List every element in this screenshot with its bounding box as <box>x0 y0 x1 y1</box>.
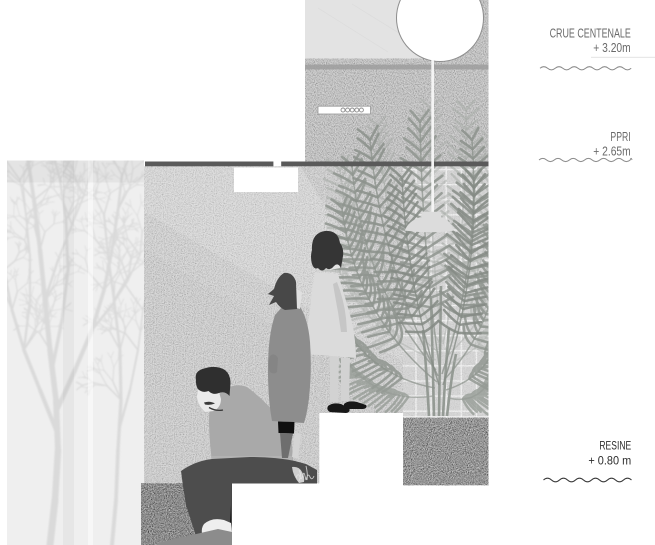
svg-text:CRUE CENTENALE: CRUE CENTENALE <box>550 25 631 40</box>
svg-text:+ 3.20m: + 3.20m <box>593 40 630 55</box>
svg-text:+ 0.80 m: + 0.80 m <box>588 454 631 468</box>
svg-text:PPRI: PPRI <box>610 129 630 144</box>
svg-text:+ 2.65m: + 2.65m <box>593 144 630 159</box>
svg-text:RESINE: RESINE <box>599 441 631 453</box>
